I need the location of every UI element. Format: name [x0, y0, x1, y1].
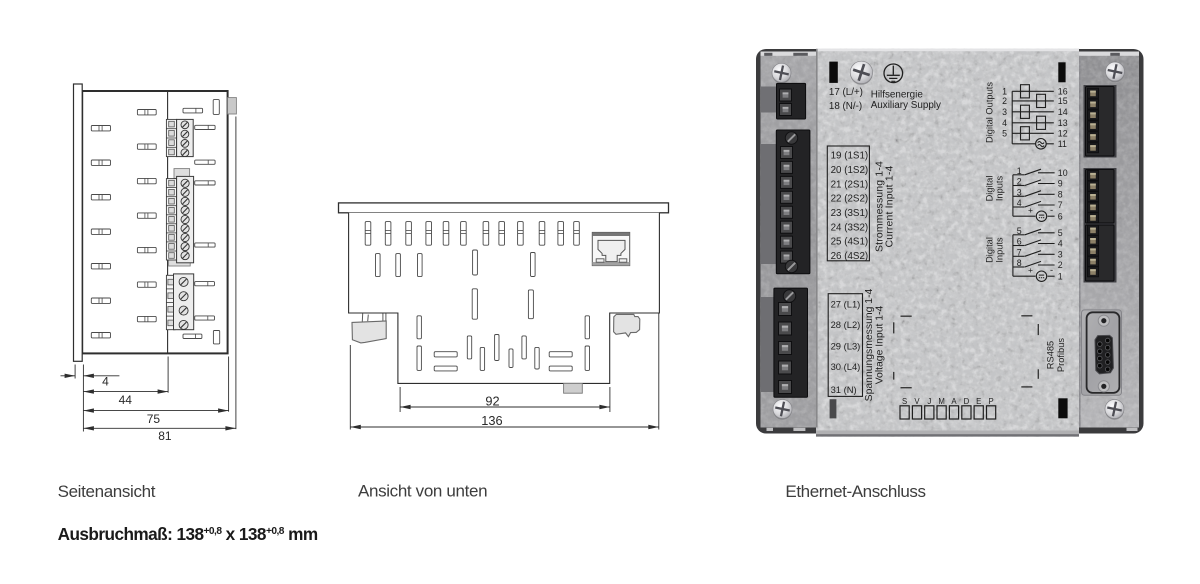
- svg-text:Digital: Digital: [985, 176, 995, 202]
- svg-text:Ansicht von unten: Ansicht von unten: [358, 482, 487, 501]
- svg-text:1: 1: [1058, 272, 1063, 282]
- svg-text:6: 6: [1058, 212, 1063, 222]
- svg-text:81: 81: [158, 429, 172, 443]
- svg-text:4: 4: [1058, 239, 1063, 249]
- svg-text:27 (L1): 27 (L1): [831, 299, 861, 310]
- svg-text:7: 7: [1058, 200, 1063, 210]
- svg-text:31 (N): 31 (N): [831, 384, 857, 395]
- svg-text:D: D: [964, 397, 970, 406]
- svg-text:+: +: [1028, 205, 1033, 215]
- svg-text:17 (L/+): 17 (L/+): [829, 87, 863, 98]
- svg-text:V: V: [914, 397, 920, 406]
- svg-text:Ausbruchmaß: 138+0,8 x 138+0,8: Ausbruchmaß: 138+0,8 x 138+0,8 mm: [58, 524, 318, 544]
- svg-text:19 (1S1): 19 (1S1): [831, 151, 869, 162]
- svg-text:Profibus: Profibus: [1056, 338, 1066, 372]
- svg-text:15: 15: [1058, 96, 1068, 106]
- svg-text:26 (4S2): 26 (4S2): [831, 251, 869, 262]
- svg-text:3: 3: [1058, 250, 1063, 260]
- svg-text:S: S: [902, 397, 907, 406]
- svg-text:92: 92: [485, 394, 499, 409]
- svg-text:3: 3: [1002, 107, 1007, 117]
- svg-text:A: A: [951, 397, 957, 406]
- svg-text:J: J: [927, 397, 931, 406]
- svg-text:4: 4: [1002, 118, 1007, 128]
- svg-text:13: 13: [1058, 118, 1068, 128]
- svg-text:Hilfsenergie: Hilfsenergie: [871, 89, 924, 100]
- svg-text:+: +: [1028, 265, 1033, 275]
- svg-text:30 (L4): 30 (L4): [831, 361, 861, 372]
- svg-text:1: 1: [1002, 87, 1007, 97]
- svg-text:RS485: RS485: [1046, 341, 1056, 369]
- svg-text:23 (3S1): 23 (3S1): [831, 208, 869, 219]
- svg-text:2: 2: [1058, 260, 1063, 270]
- svg-text:Voltage Input 1-4: Voltage Input 1-4: [874, 305, 885, 384]
- svg-text:P: P: [988, 397, 993, 406]
- svg-text:Seitenansicht: Seitenansicht: [58, 482, 156, 501]
- svg-text:10: 10: [1058, 168, 1068, 178]
- svg-text:16: 16: [1058, 87, 1068, 97]
- svg-text:-: -: [1050, 265, 1053, 276]
- svg-text:M: M: [938, 397, 945, 406]
- svg-text:Digital Outputs: Digital Outputs: [984, 82, 994, 143]
- svg-text:Digital: Digital: [985, 237, 995, 263]
- svg-text:5: 5: [1058, 228, 1063, 238]
- svg-text:22 (2S2): 22 (2S2): [831, 194, 869, 205]
- svg-text:25 (4S1): 25 (4S1): [831, 237, 869, 248]
- svg-text:E: E: [976, 397, 981, 406]
- svg-text:12: 12: [1058, 129, 1068, 139]
- svg-text:Auxiliary Supply: Auxiliary Supply: [871, 100, 941, 111]
- svg-text:-: -: [1050, 205, 1053, 216]
- svg-text:28 (L2): 28 (L2): [831, 319, 861, 330]
- svg-text:24 (3S2): 24 (3S2): [831, 222, 869, 233]
- svg-text:Inputs: Inputs: [995, 237, 1005, 263]
- svg-text:Ethernet-Anschluss: Ethernet-Anschluss: [785, 482, 925, 501]
- svg-text:136: 136: [481, 413, 502, 428]
- svg-text:29 (L3): 29 (L3): [831, 340, 861, 351]
- svg-text:44: 44: [119, 393, 133, 407]
- svg-text:8: 8: [1058, 190, 1063, 200]
- svg-text:2: 2: [1002, 96, 1007, 106]
- svg-text:75: 75: [147, 412, 161, 426]
- svg-text:21 (2S1): 21 (2S1): [831, 179, 869, 190]
- svg-text:18 (N/-): 18 (N/-): [829, 101, 862, 112]
- svg-text:Current Input 1-4: Current Input 1-4: [885, 166, 896, 248]
- svg-text:11: 11: [1058, 139, 1067, 149]
- svg-text:9: 9: [1058, 179, 1063, 189]
- svg-text:4: 4: [102, 375, 109, 389]
- svg-text:20 (1S2): 20 (1S2): [831, 165, 869, 176]
- svg-text:14: 14: [1058, 107, 1068, 117]
- svg-text:5: 5: [1002, 129, 1007, 139]
- svg-text:Inputs: Inputs: [995, 175, 1005, 201]
